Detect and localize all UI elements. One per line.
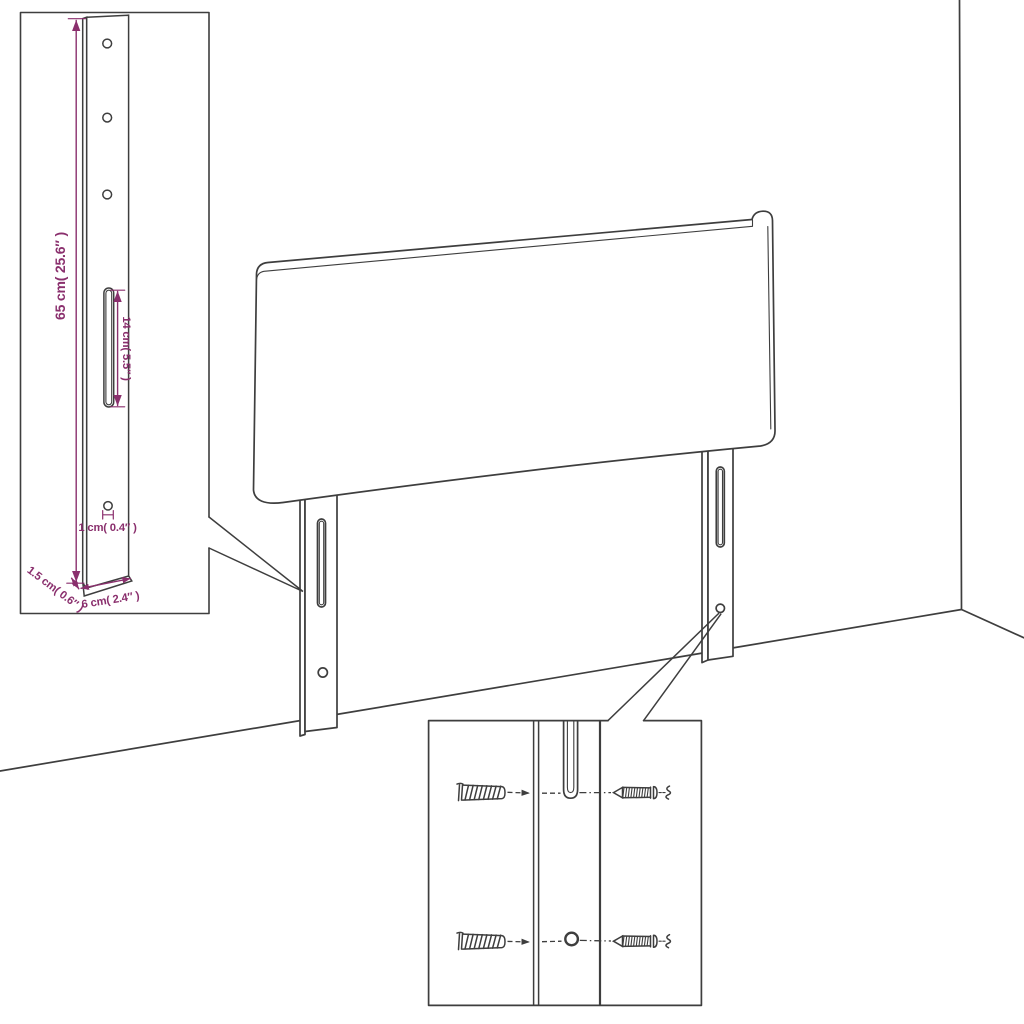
callout-pointer-lines xyxy=(209,517,303,592)
dimension-label-leg-height: 65 cm( 25.6″ ) xyxy=(52,232,68,320)
wall-plug-icon xyxy=(457,783,505,800)
callout-box-border xyxy=(429,721,702,1006)
dimension-label-hole-diameter: 1 cm( 0.4″ ) xyxy=(78,522,137,534)
dimension-label-slot-length: 14 cm( 5.5″ ) xyxy=(120,316,132,381)
right-leg-side-face xyxy=(702,446,708,662)
mounting-detail-callout xyxy=(429,614,721,1006)
headboard-outline xyxy=(254,211,776,503)
left-leg xyxy=(300,487,337,736)
closeup-slot xyxy=(564,721,578,798)
assembly-diagram-page: 65 cm( 25.6″ ) 14 cm( 5.5″ ) 1 cm( 0.4″ … xyxy=(0,0,1024,1024)
wall-plug-icon xyxy=(457,932,505,949)
headboard-assembly-diagram: 65 cm( 25.6″ ) 14 cm( 5.5″ ) 1 cm( 0.4″ … xyxy=(0,0,1024,1024)
leg-closeup-drawing xyxy=(534,721,600,1005)
screw-icon xyxy=(614,786,671,799)
left-leg-front-face xyxy=(305,487,337,732)
screw-icon xyxy=(614,935,671,948)
dimension-leg-height: 65 cm( 25.6″ ) xyxy=(52,19,86,584)
alignment-guide-lines xyxy=(508,792,612,942)
right-leg xyxy=(702,440,733,663)
headboard-panel xyxy=(254,211,776,503)
closeup-hole xyxy=(565,933,578,946)
leg-detail-drawing xyxy=(83,15,132,596)
